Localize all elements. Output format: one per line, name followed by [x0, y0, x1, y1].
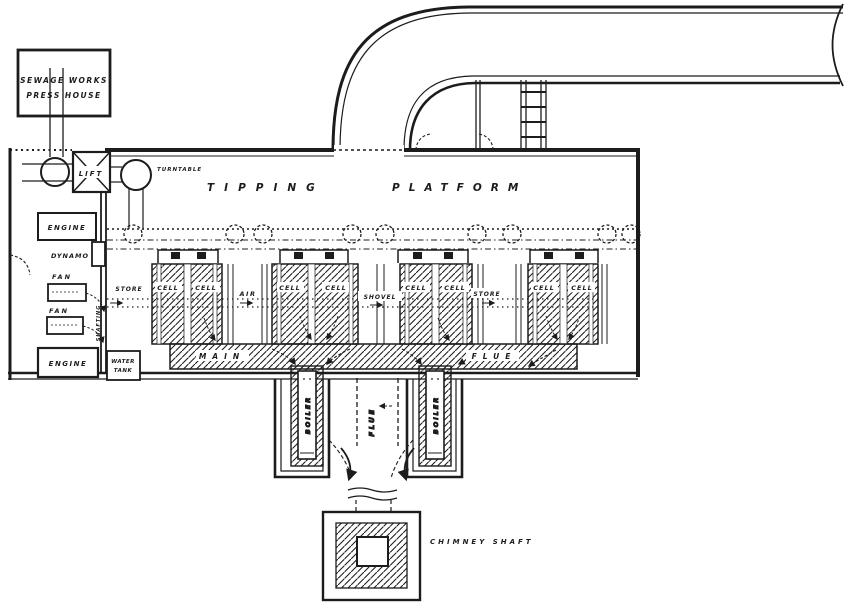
cell-block-2: CELL CELL — [272, 264, 358, 344]
platform-label: PLATFORM — [392, 182, 527, 194]
main-flue-strip: MAIN FLUE — [170, 344, 577, 369]
boiler-left: BOILER — [275, 366, 329, 477]
approach-road — [333, 4, 843, 150]
lift: LIFT — [22, 152, 110, 192]
press-house-label-1: SEWAGE WORKS — [20, 76, 108, 85]
store-left-label: STORE — [115, 286, 142, 293]
cell-label-6: CELL — [444, 284, 466, 292]
shafting-label: SHAFTING — [96, 305, 102, 342]
charging-hoppers — [158, 250, 598, 263]
road-stairs — [521, 80, 546, 150]
flue-center-label: FLUE — [368, 407, 376, 436]
chimney-shaft: CHIMNEY SHAFT — [323, 512, 534, 600]
cell-label-4: CELL — [325, 284, 347, 292]
cell-label-3: CELL — [279, 284, 301, 292]
press-house-label-2: PRESS HOUSE — [26, 91, 101, 100]
dynamo-label: DYNAMO — [51, 252, 89, 260]
fan-bottom-label: FAN — [49, 307, 69, 315]
tram-rails — [107, 225, 640, 249]
door-swing-arc — [10, 255, 30, 275]
boiler-left-label: BOILER — [304, 396, 312, 435]
water-tank-label-1: WATER — [111, 359, 135, 365]
lift-wheel — [41, 158, 69, 186]
cell-block-4: CELL CELL — [528, 264, 598, 344]
engine-top-label: ENGINE — [48, 224, 87, 232]
cell-label-1: CELL — [157, 284, 179, 292]
store-right-label: STORE — [473, 291, 500, 298]
cell-block-3: CELL CELL — [400, 264, 472, 344]
tipping-platform-title: TIPPING PLATFORM — [207, 182, 527, 194]
plan-drawing: SEWAGE WORKS PRESS HOUSE — [0, 0, 850, 604]
road-break-mark — [833, 4, 844, 86]
cell-label-2: CELL — [195, 284, 217, 292]
fan-top-unit — [48, 284, 86, 301]
boiler-right-label: BOILER — [432, 396, 440, 435]
cell-label-7: CELL — [533, 284, 555, 292]
water-tank-label-2: TANK — [114, 368, 133, 374]
fan-top-label: FAN — [52, 273, 72, 281]
flue-break-line — [348, 496, 397, 500]
flue-break-line — [348, 488, 397, 492]
main-flue-flue-label: FLUE — [472, 352, 517, 361]
cell-label-5: CELL — [405, 284, 427, 292]
engine-room: ENGINE DYNAMO FAN FAN ENGINE WATER TANK … — [10, 213, 140, 380]
turntable-label: TURNTABLE — [157, 167, 202, 173]
air-label: AIR — [239, 290, 257, 298]
boiler-right: BOILER — [407, 366, 462, 477]
lift-label: LIFT — [79, 170, 104, 178]
cell-block-1: CELL CELL — [152, 264, 222, 344]
cell-blocks: CELL CELL CELL CELL CELL CELL — [152, 264, 598, 344]
tipping-label: TIPPING — [207, 182, 325, 194]
door-swing-arc — [416, 134, 432, 150]
cell-draught-arrows — [204, 316, 580, 340]
chimney-shaft-label: CHIMNEY SHAFT — [430, 538, 534, 546]
fan-bottom-unit — [47, 317, 83, 334]
turntable-circle — [121, 160, 151, 190]
engine-bottom-label: ENGINE — [49, 360, 88, 368]
destructor-plant-plan: SEWAGE WORKS PRESS HOUSE — [0, 0, 850, 604]
water-tank — [107, 351, 140, 380]
shovel-label: SHOVEL — [364, 294, 397, 301]
turntable: TURNTABLE — [110, 160, 202, 229]
main-flue-main-label: MAIN — [199, 352, 245, 361]
dynamo-unit — [92, 242, 105, 266]
cell-label-8: CELL — [571, 284, 593, 292]
press-house: SEWAGE WORKS PRESS HOUSE — [18, 50, 110, 157]
